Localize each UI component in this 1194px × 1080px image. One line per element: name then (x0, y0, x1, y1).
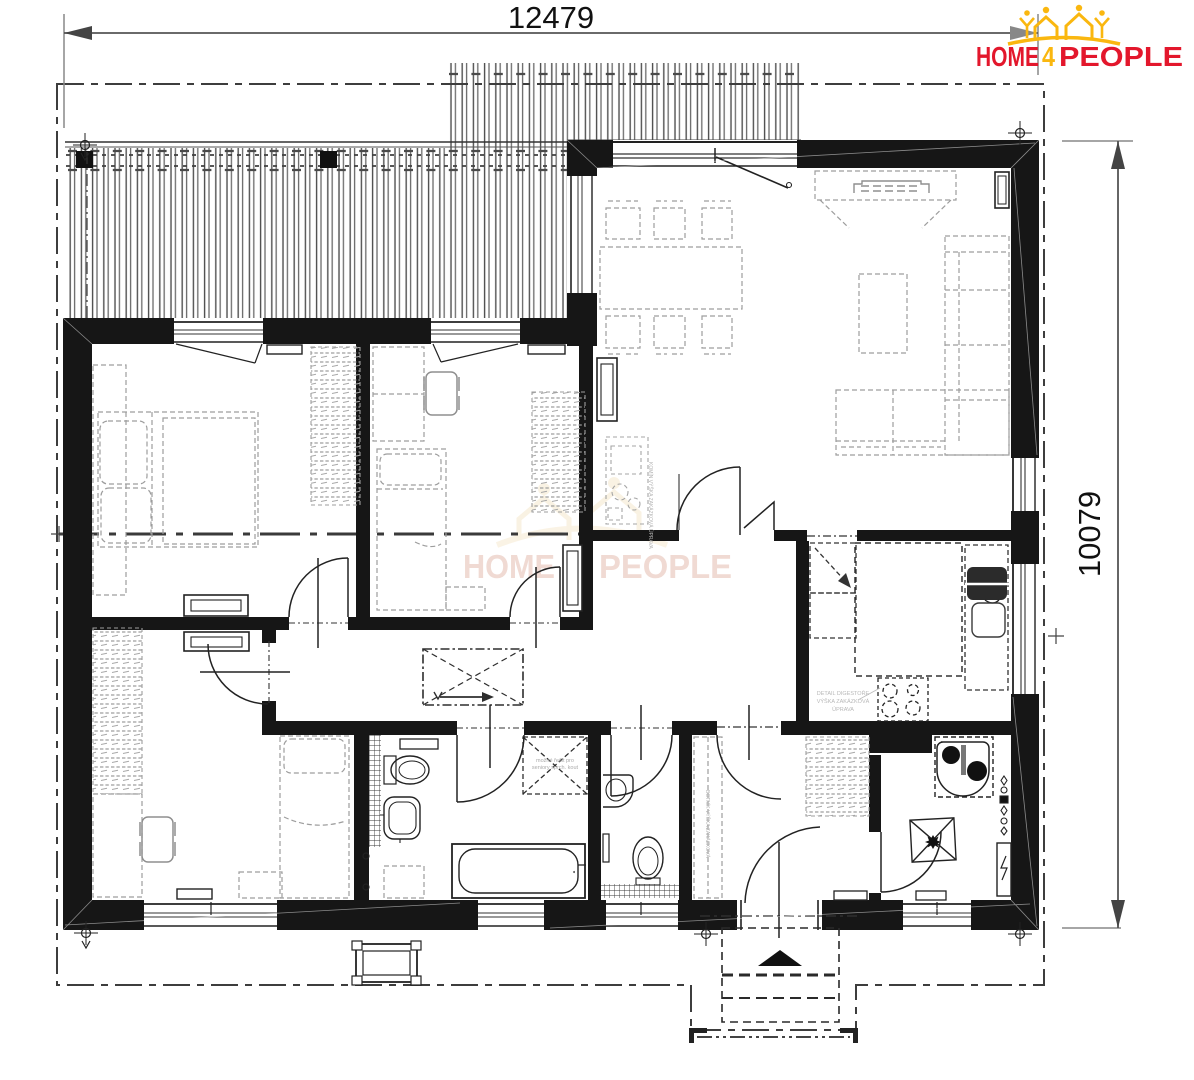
svg-text:HOME: HOME (463, 548, 555, 585)
svg-text:ÚPRAVA: ÚPRAVA (832, 706, 854, 713)
svg-text:DETAIL DIGESTOŘE: DETAIL DIGESTOŘE (817, 689, 870, 697)
svg-text:10079: 10079 (1072, 491, 1107, 577)
svg-text:HOME: HOME (976, 41, 1039, 72)
svg-text:BOTNÍK VÝŠKA ZAKÁZKOVÁ: BOTNÍK VÝŠKA ZAKÁZKOVÁ (704, 790, 711, 858)
svg-text:PEOPLE: PEOPLE (1059, 41, 1183, 72)
svg-text:seniory sprch. kout: seniory sprch. kout (532, 765, 579, 771)
svg-text:12479: 12479 (508, 0, 594, 35)
svg-text:4: 4 (1042, 41, 1055, 72)
svg-text:možné řešit pro: možné řešit pro (536, 758, 574, 764)
svg-text:PEOPLE: PEOPLE (599, 548, 732, 585)
svg-text:KOMÍN VÝŠKA ZAKÁZKOVÁ ÚPRAVA: KOMÍN VÝŠKA ZAKÁZKOVÁ ÚPRAVA (647, 462, 654, 549)
svg-text:VÝŠKA ZAKÁZKOVÁ: VÝŠKA ZAKÁZKOVÁ (817, 698, 870, 705)
